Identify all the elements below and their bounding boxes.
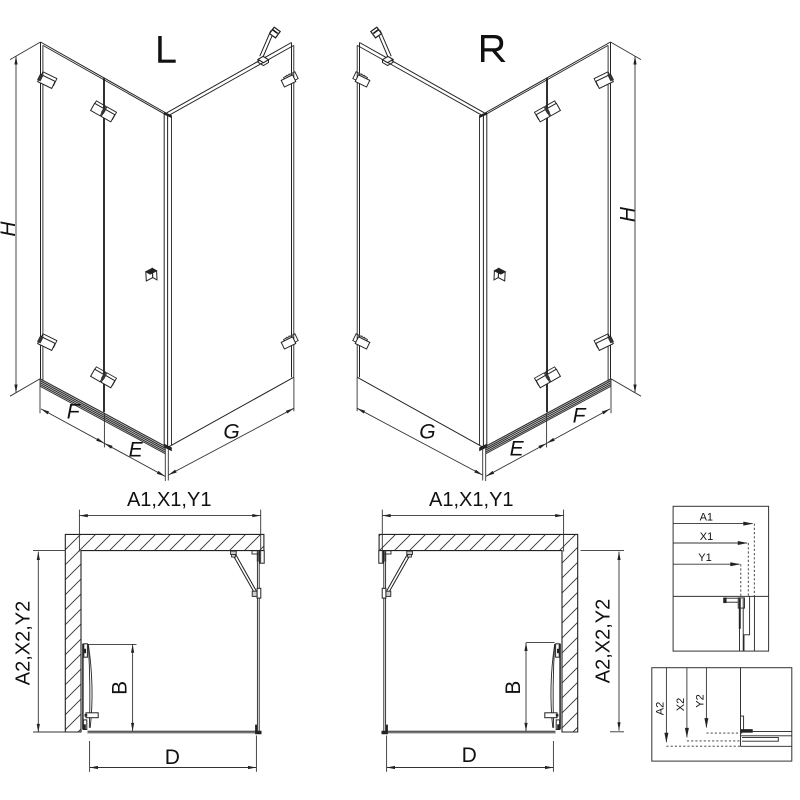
svg-text:G: G <box>419 421 435 444</box>
svg-text:A1,X1,Y1: A1,X1,Y1 <box>127 489 212 511</box>
svg-text:X1: X1 <box>700 531 713 543</box>
svg-text:G: G <box>223 421 239 444</box>
svg-text:A2: A2 <box>655 702 667 715</box>
svg-text:A1: A1 <box>700 511 713 523</box>
svg-text:D: D <box>462 744 477 767</box>
svg-text:B: B <box>108 681 131 695</box>
svg-text:X2: X2 <box>675 698 687 711</box>
svg-text:F: F <box>573 405 587 428</box>
svg-text:Y2: Y2 <box>695 694 707 707</box>
svg-text:B: B <box>502 681 525 695</box>
svg-text:F: F <box>67 401 81 424</box>
svg-text:Y1: Y1 <box>698 552 711 564</box>
svg-text:A2,X2,Y2: A2,X2,Y2 <box>593 599 615 684</box>
svg-text:E: E <box>510 438 525 461</box>
svg-text:A2,X2,Y2: A2,X2,Y2 <box>12 601 34 686</box>
svg-text:H: H <box>617 206 640 222</box>
svg-text:D: D <box>165 746 180 769</box>
svg-text:E: E <box>129 439 144 462</box>
svg-text:H: H <box>0 221 20 237</box>
svg-text:A1,X1,Y1: A1,X1,Y1 <box>429 489 514 511</box>
